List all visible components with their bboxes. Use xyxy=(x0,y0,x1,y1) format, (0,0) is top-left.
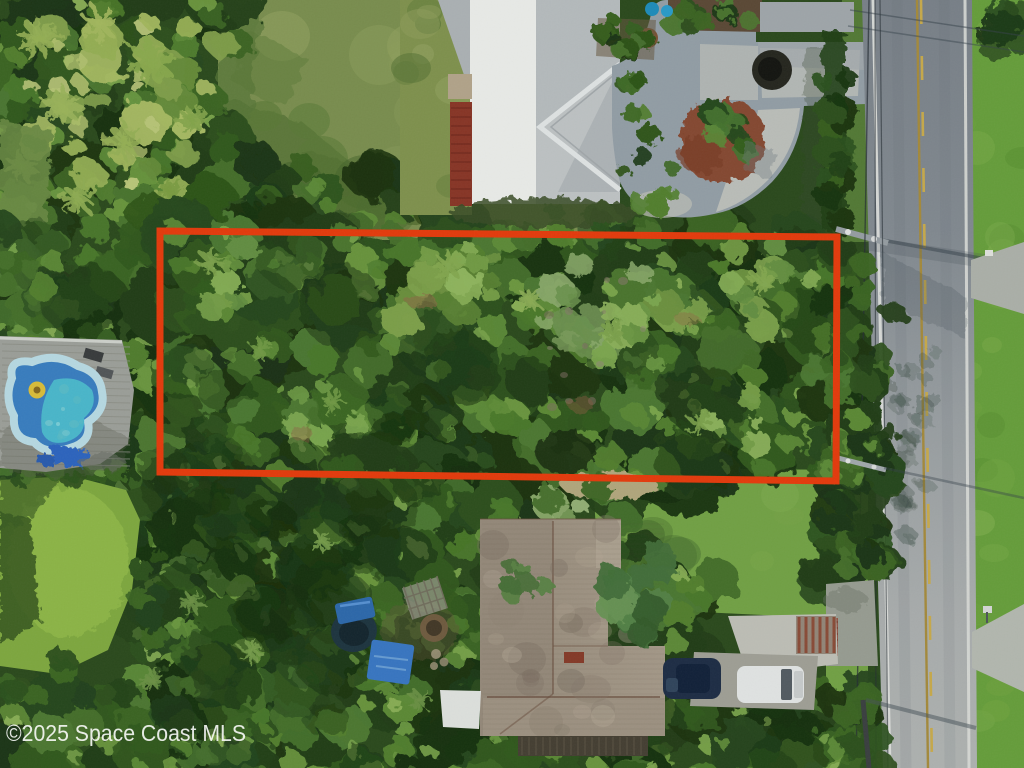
svg-text:©2025 Space Coast MLS: ©2025 Space Coast MLS xyxy=(6,720,246,746)
